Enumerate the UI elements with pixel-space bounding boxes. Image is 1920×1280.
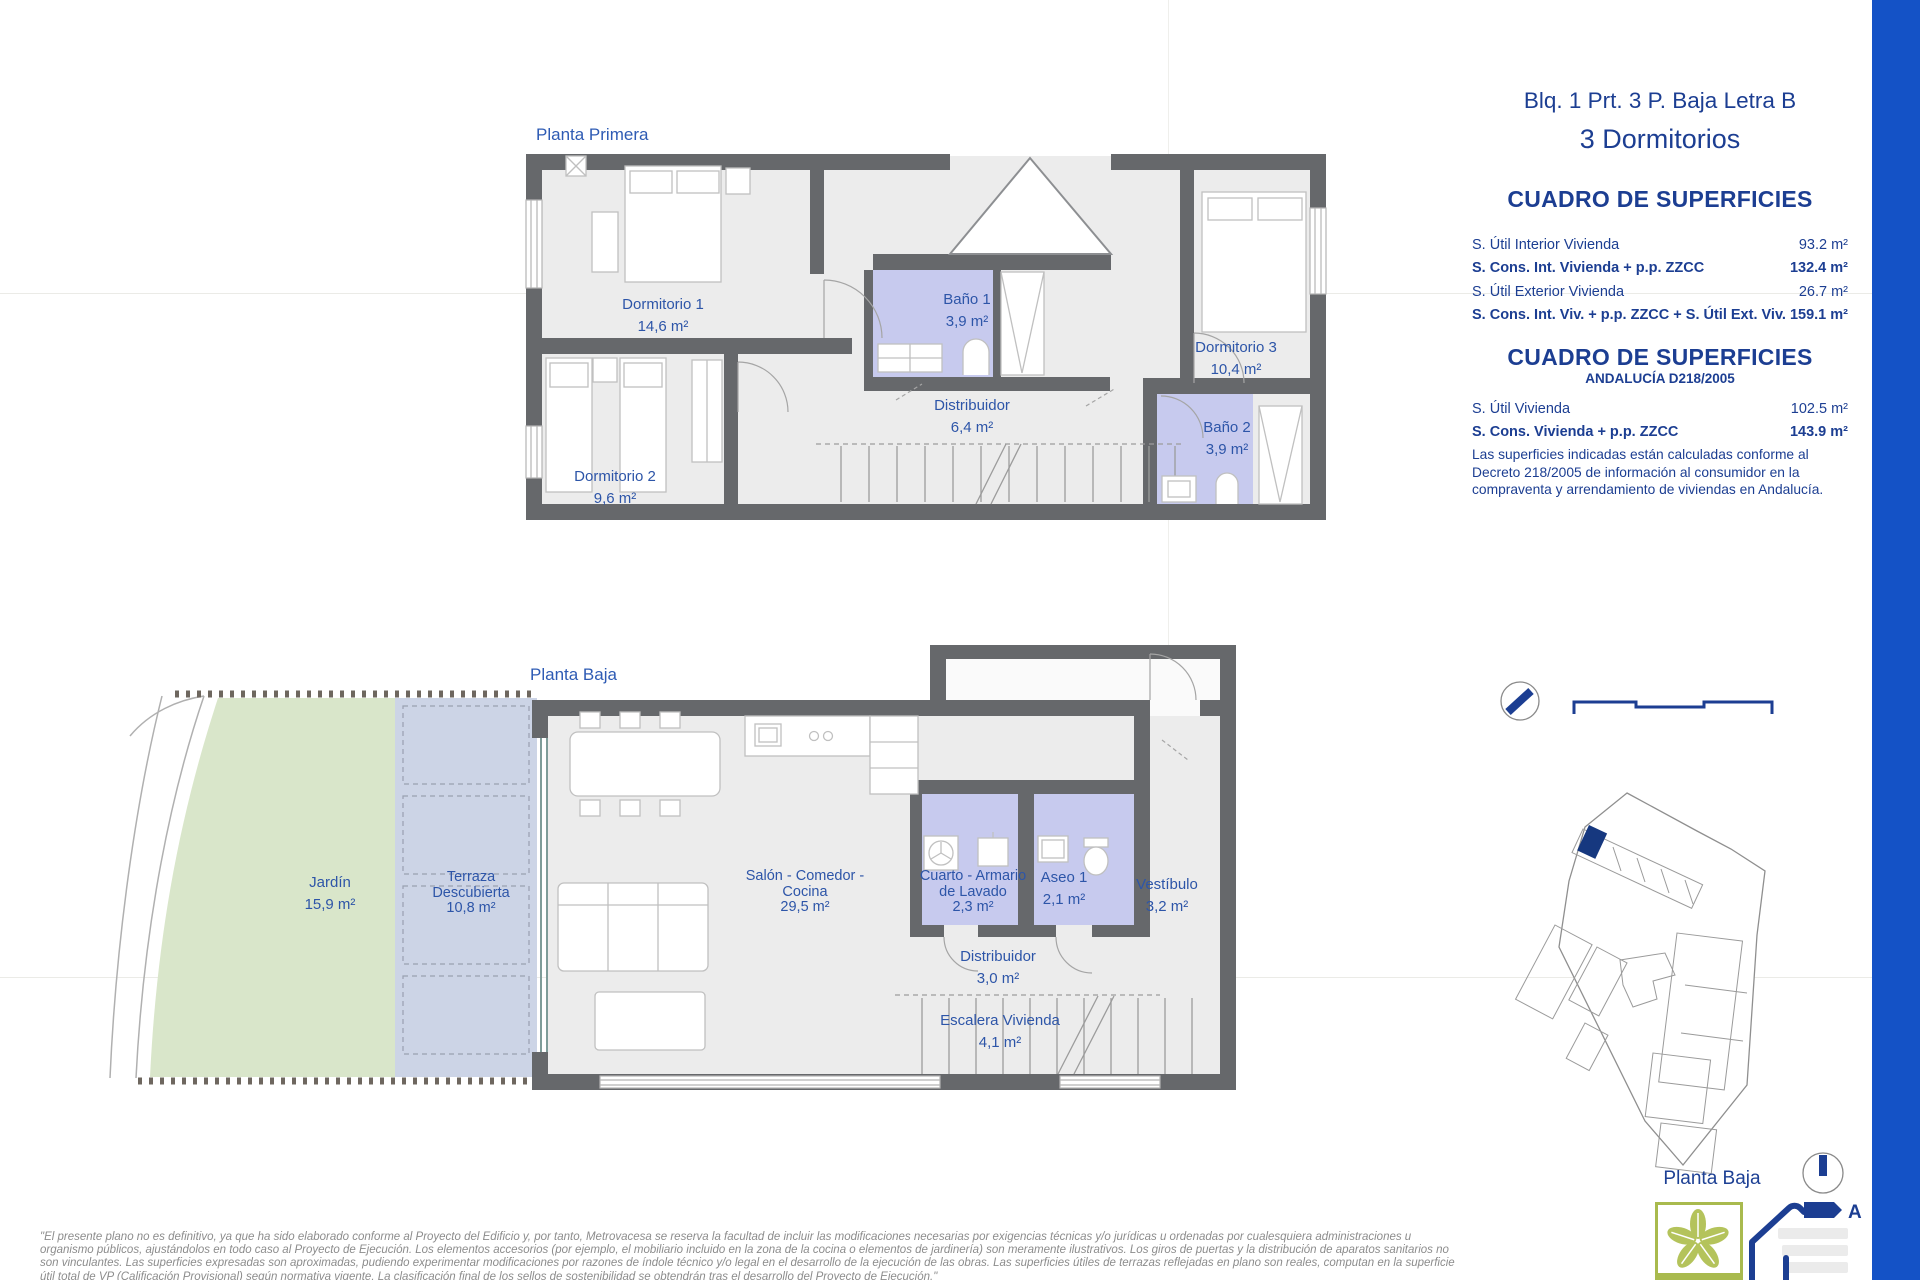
site-keyplan bbox=[1525, 785, 1855, 1195]
room-label-bano-1: Baño 13,9 m² bbox=[943, 289, 991, 333]
floorplan-sheet: Planta Primera bbox=[0, 0, 1920, 1280]
rear-windows bbox=[600, 1076, 1160, 1088]
unit-title: Blq. 1 Prt. 3 P. Baja Letra B bbox=[1468, 88, 1852, 114]
room-label-dormitorio-1: Dormitorio 114,6 m² bbox=[622, 294, 704, 338]
surfaces-table-1: S. Útil Interior Vivienda93.2 m² S. Cons… bbox=[1472, 234, 1848, 328]
room-label-dormitorio-3: Dormitorio 310,4 m² bbox=[1195, 337, 1277, 381]
room-label-bano-2: Baño 23,9 m² bbox=[1203, 417, 1251, 461]
room-label-vestibulo: Vestíbulo3,2 m² bbox=[1136, 874, 1198, 918]
table-row: S. Útil Interior Vivienda93.2 m² bbox=[1472, 234, 1848, 257]
table-row: S. Cons. Int. Vivienda + p.p. ZZCC132.4 … bbox=[1472, 257, 1848, 280]
surfaces-table-2-title: CUADRO DE SUPERFICIES bbox=[1468, 344, 1852, 371]
unit-subtitle: 3 Dormitorios bbox=[1468, 124, 1852, 155]
jardin-area bbox=[150, 698, 395, 1077]
compass-icon bbox=[1498, 680, 1542, 724]
verde-certification-logo: VERDE bbox=[1655, 1202, 1743, 1280]
elevation-profile-icon bbox=[1570, 690, 1780, 718]
room-label-salon: Salón - Comedor -Cocina29,5 m² bbox=[746, 869, 864, 916]
room-label-lavado: Cuarto - Armariode Lavado2,3 m² bbox=[920, 869, 1026, 916]
verde-leaf-icon bbox=[1658, 1205, 1740, 1273]
table-row: S. Útil Vivienda102.5 m² bbox=[1472, 398, 1848, 421]
room-label-distribuidor-primera: Distribuidor6,4 m² bbox=[934, 395, 1010, 439]
rating-arrow bbox=[1804, 1202, 1842, 1218]
decree-note: Las superficies indicadas están calculad… bbox=[1472, 446, 1848, 499]
rating-letter: A bbox=[1848, 1202, 1862, 1223]
surfaces-table-2: S. Útil Vivienda102.5 m² S. Cons. Vivien… bbox=[1472, 398, 1848, 445]
disclaimer-text: "El presente plano no es definitivo, ya … bbox=[40, 1231, 1445, 1280]
room-label-distribuidor-baja: Distribuidor3,0 m² bbox=[960, 946, 1036, 990]
room-label-dormitorio-2: Dormitorio 29,6 m² bbox=[574, 466, 656, 510]
glazing bbox=[541, 738, 547, 1052]
verde-label: VERDE bbox=[1658, 1273, 1740, 1280]
planta-primera-title: Planta Primera bbox=[536, 126, 648, 143]
brand-side-band bbox=[1872, 0, 1920, 1280]
room-label-aseo: Aseo 12,1 m² bbox=[1041, 867, 1088, 911]
room-label-jardin: Jardín15,9 m² bbox=[305, 872, 356, 916]
room-label-escalera: Escalera Vivienda4,1 m² bbox=[940, 1010, 1060, 1054]
surfaces-table-1-title: CUADRO DE SUPERFICIES bbox=[1468, 186, 1852, 213]
table-row: S. Útil Exterior Vivienda26.7 m² bbox=[1472, 281, 1848, 304]
surfaces-table-2-subtitle: ANDALUCÍA D218/2005 bbox=[1468, 371, 1852, 386]
table-row: S. Cons. Vivienda + p.p. ZZCC143.9 m² bbox=[1472, 421, 1848, 444]
keyplan-label: Planta Baja bbox=[1663, 1168, 1760, 1190]
room-label-terraza: TerrazaDescubierta10,8 m² bbox=[432, 870, 509, 917]
table-row: S. Cons. Int. Viv. + p.p. ZZCC + S. Útil… bbox=[1472, 304, 1848, 327]
energy-rating-house-icon: A bbox=[1742, 1188, 1872, 1280]
